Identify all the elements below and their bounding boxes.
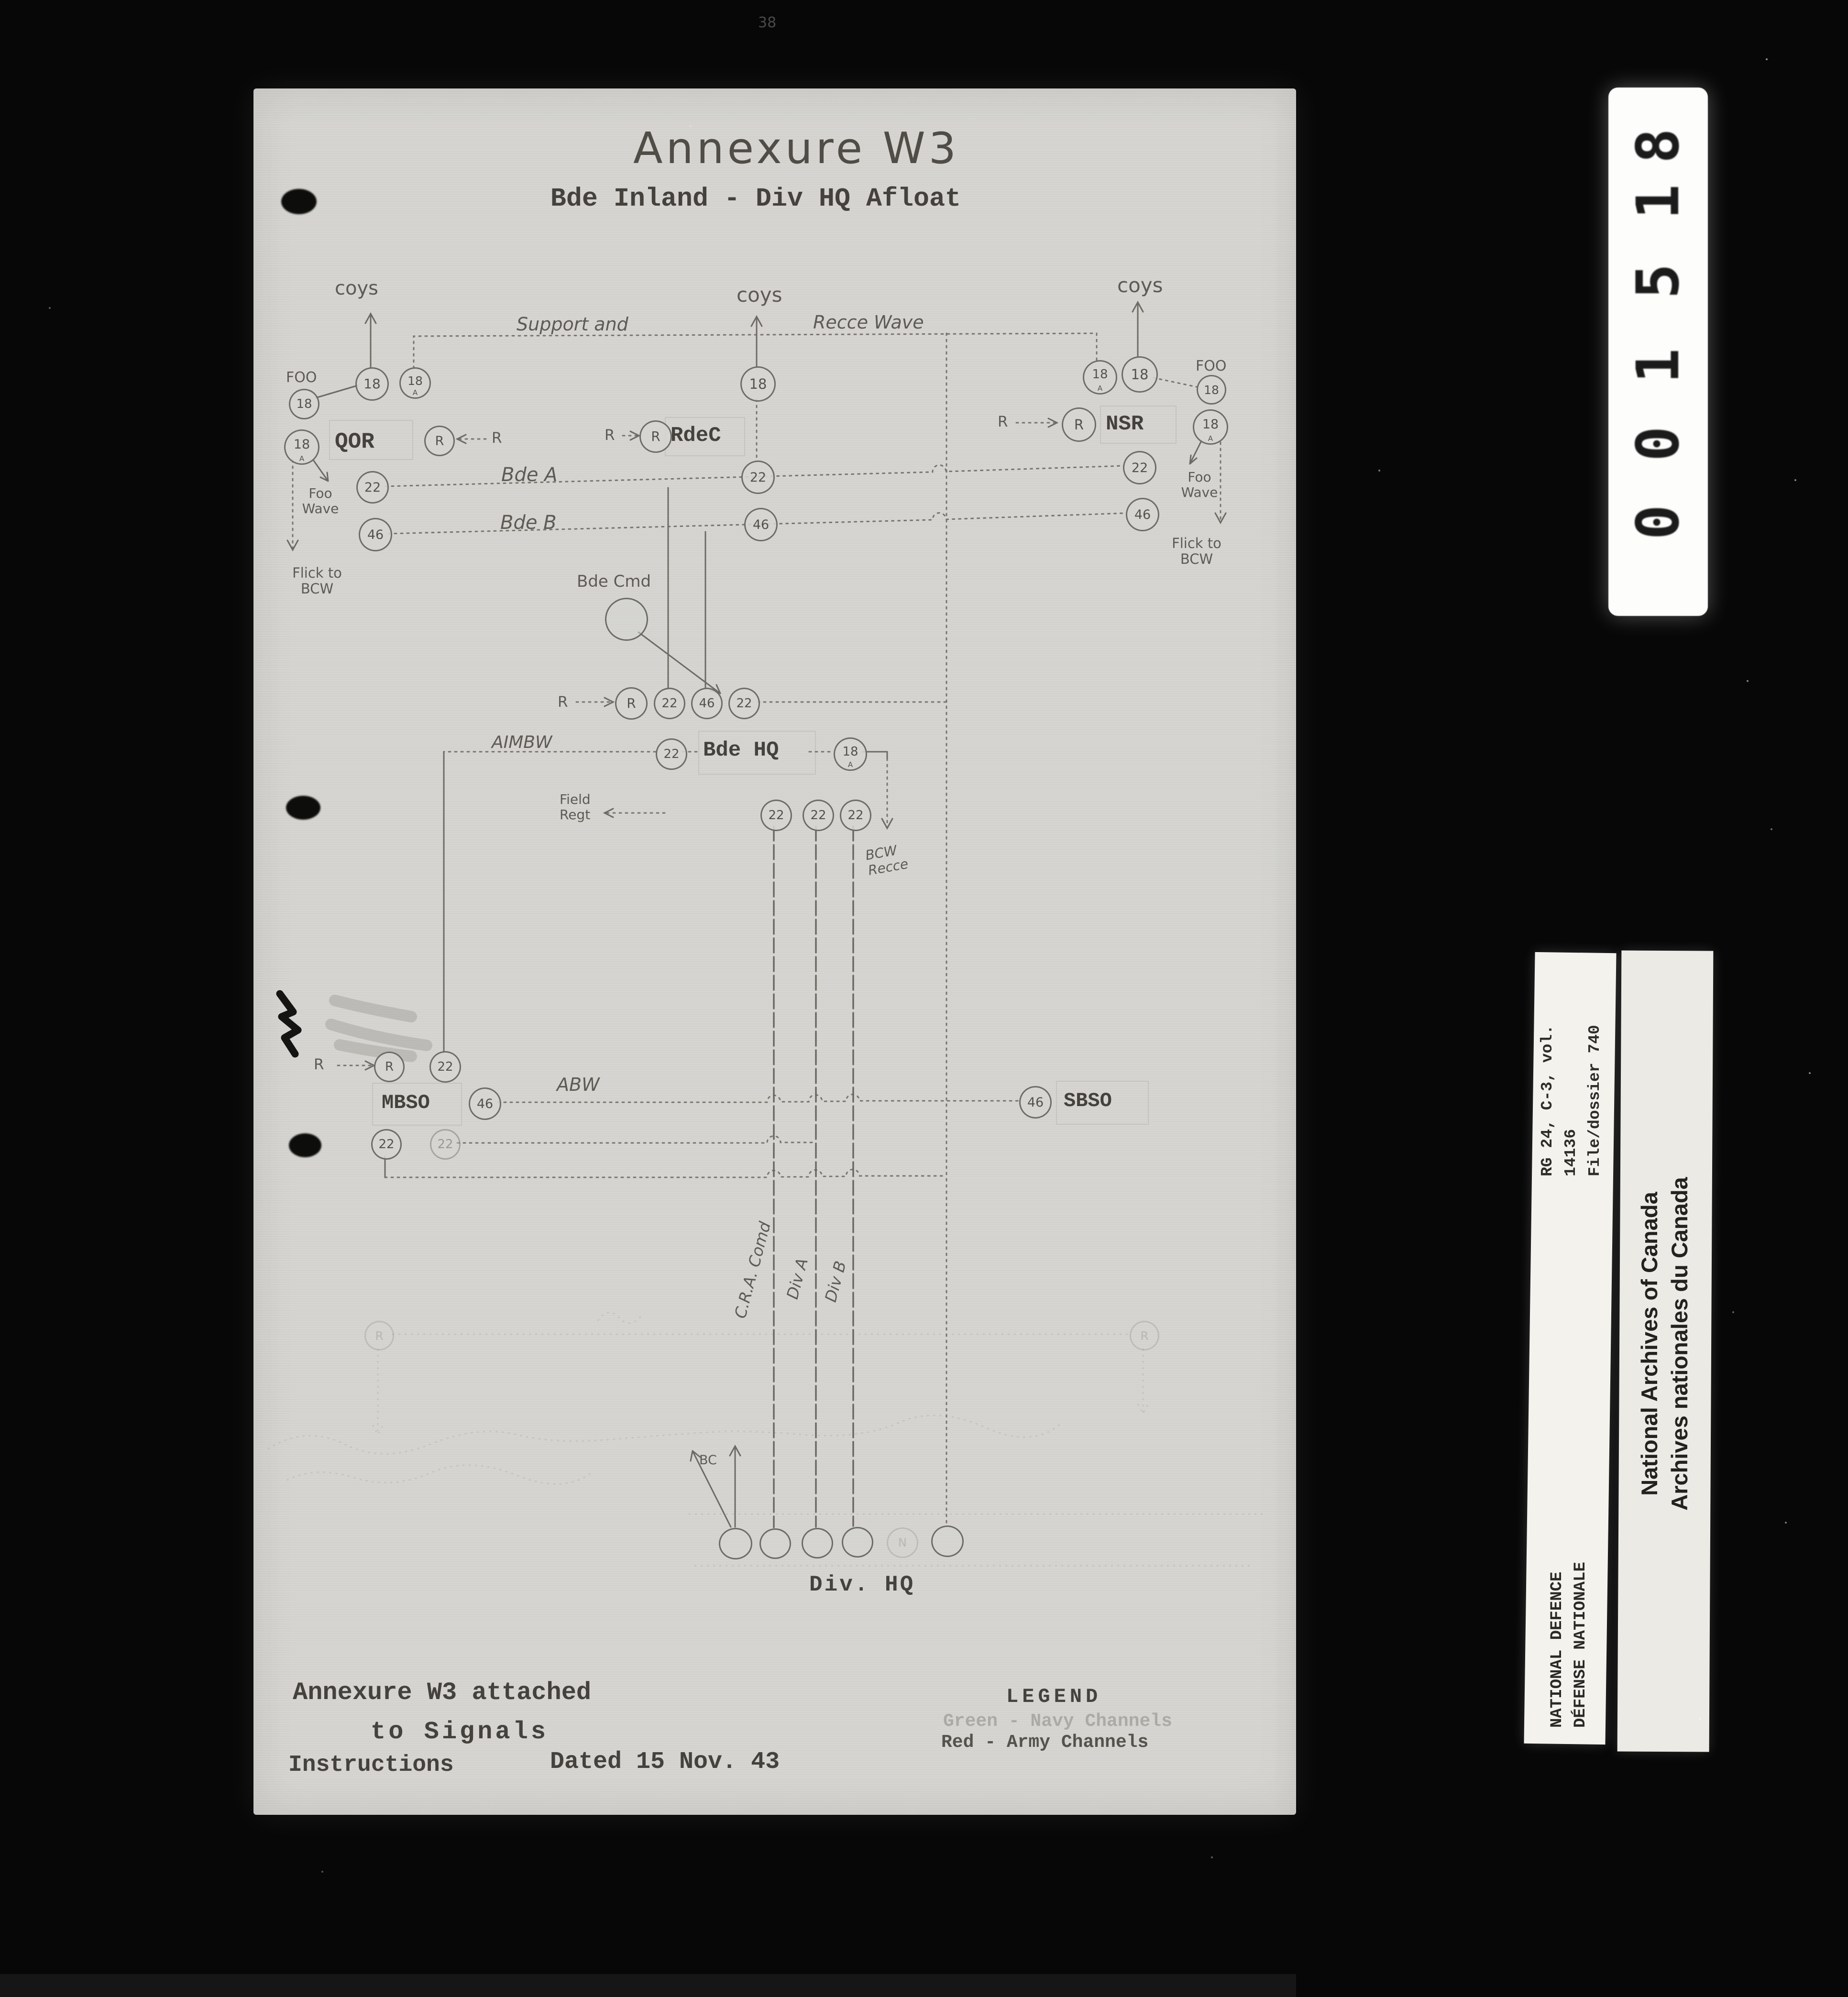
punch-dot-2 <box>286 796 320 820</box>
div-hq-label: Div. HQ <box>809 1572 915 1597</box>
set-22-bdehq-row: 22 <box>654 688 685 719</box>
divhq-terminal-4 <box>842 1527 873 1558</box>
punch-dot-3 <box>289 1133 321 1157</box>
set-r-nsr: R <box>1062 407 1096 442</box>
frame-counter-strip: 8 1 5 1 0 0 <box>1608 88 1708 616</box>
divhq-terminal-3 <box>802 1528 833 1558</box>
bde-b-net-label: Bde B <box>500 512 557 534</box>
set-18-center: 18 <box>740 366 776 402</box>
mbso-label: MBSO <box>382 1091 430 1114</box>
footer-date: Dated 15 Nov. 43 <box>550 1748 780 1776</box>
set-22-mbso-lower-2: 22 <box>430 1129 461 1160</box>
r-remote-nsr: R <box>998 413 1008 430</box>
set-18a-left-2: 18A <box>399 367 431 399</box>
bde-hq-label: Bde HQ <box>703 738 779 762</box>
microfilm-scan: 38 Annexure W3 Bde Inland - Div HQ Afloa… <box>0 0 1848 1997</box>
footer-line-1: Annexure W3 attached <box>293 1679 591 1707</box>
divhq-terminal-n: N <box>887 1527 918 1558</box>
set-46-sbso: 46 <box>1019 1086 1052 1119</box>
legend-navy-entry: Green - Navy Channels <box>943 1711 1172 1732</box>
r-remote-rdec: R <box>605 427 615 444</box>
bde-cmd-circle <box>605 598 648 641</box>
coys-left-label: coys <box>335 277 378 299</box>
coys-center-label: coys <box>737 283 782 307</box>
abw-net-label: ABW <box>557 1074 600 1095</box>
foo-wave-left-label: FooWave <box>292 486 349 516</box>
set-18-foo-right: 18 <box>1197 375 1226 405</box>
foo-right-label: FOO <box>1196 358 1226 374</box>
flick-bcw-left-label: Flick toBCW <box>276 565 358 597</box>
foo-wave-right-label: FooWave <box>1171 470 1228 500</box>
foo-left-label: FOO <box>286 369 317 386</box>
recce-wave-label: Recce Wave <box>813 312 924 333</box>
ink-blot <box>280 994 298 1054</box>
legend-heading: LEGEND <box>1006 1685 1101 1708</box>
footer-line-3: Instructions <box>288 1752 454 1778</box>
r-remote-qor: R <box>492 429 502 447</box>
set-46-bde-b-center: 46 <box>744 508 778 541</box>
nsr-unit-label: NSR <box>1106 412 1144 436</box>
aimbw-net-label: AIMBW <box>492 733 552 752</box>
set-r-rdec: R <box>639 420 672 453</box>
rg-reference-label: RG 24, C-3, vol. 14136 File/dossier 740 <box>1535 971 1607 1176</box>
punch-dot-1 <box>281 189 317 214</box>
support-wave-label: Support and <box>517 314 628 335</box>
set-46-bde-b-left: 46 <box>359 518 392 551</box>
set-18-foo-left: 18 <box>289 389 319 419</box>
set-22b-bdehq-row: 22 <box>728 688 760 719</box>
set-18a-right-1: 18A <box>1083 360 1117 395</box>
set-18-right: 18 <box>1122 356 1158 393</box>
set-46-bdehq-row: 46 <box>691 688 723 719</box>
set-22-div-b: 22 <box>840 800 871 831</box>
set-46-bde-b-right: 46 <box>1126 498 1159 531</box>
set-r-mbso: R <box>374 1052 405 1082</box>
national-defence-label: NATIONAL DEFENCE DÉFENSE NATIONALE <box>1536 1513 1603 1728</box>
divhq-terminal-2 <box>759 1528 791 1559</box>
set-22-aimbw: 22 <box>656 738 687 770</box>
qor-unit-label: QOR <box>335 429 374 454</box>
counter-digit-6: 0 <box>1620 472 1696 572</box>
set-22-div-a: 22 <box>803 800 834 831</box>
set-22-bde-a-center: 22 <box>741 461 775 494</box>
set-22-mbso-lower-1: 22 <box>371 1129 402 1160</box>
set-22-cra: 22 <box>760 800 792 831</box>
ghost-r-left: R <box>364 1321 394 1350</box>
film-specks <box>1766 58 1768 60</box>
set-18-left-1: 18 <box>355 367 389 401</box>
set-r-bdehq: R <box>615 687 648 720</box>
r-remote-mbso: R <box>314 1056 324 1073</box>
sbso-label: SBSO <box>1064 1089 1112 1112</box>
bde-cmd-label: Bde Cmd <box>577 572 651 591</box>
ghost-r-right: R <box>1130 1321 1159 1350</box>
archives-canada-label: National Archives of Canada Archives nat… <box>1626 1090 1703 1597</box>
set-46-mbso: 46 <box>469 1087 501 1120</box>
r-remote-bde: R <box>558 693 568 711</box>
set-18a-foo-wave-left: 18A <box>284 429 319 465</box>
flick-bcw-right-label: Flick toBCW <box>1154 536 1240 568</box>
set-22-bde-a-left: 22 <box>356 471 389 504</box>
legend-army-entry: Red - Army Channels <box>941 1732 1148 1753</box>
bc-label: BC <box>699 1453 717 1468</box>
footer-line-2: to Signals <box>371 1718 549 1746</box>
set-18a-bdehq: 18A <box>834 737 867 771</box>
field-regt-label: FieldRegt <box>560 792 591 823</box>
rdec-unit-label: RdeC <box>671 424 721 448</box>
set-22-bde-a-right: 22 <box>1123 451 1156 484</box>
divhq-terminal-1 <box>719 1528 752 1559</box>
divhq-terminal-6 <box>931 1525 964 1557</box>
set-18a-foo-wave-right: 18A <box>1193 409 1228 445</box>
coys-right-label: coys <box>1117 274 1163 297</box>
set-r-qor: R <box>424 426 455 456</box>
bde-a-net-label: Bde A <box>501 464 558 486</box>
film-edge-band <box>0 1974 1296 1997</box>
set-22-mbso: 22 <box>429 1051 461 1083</box>
